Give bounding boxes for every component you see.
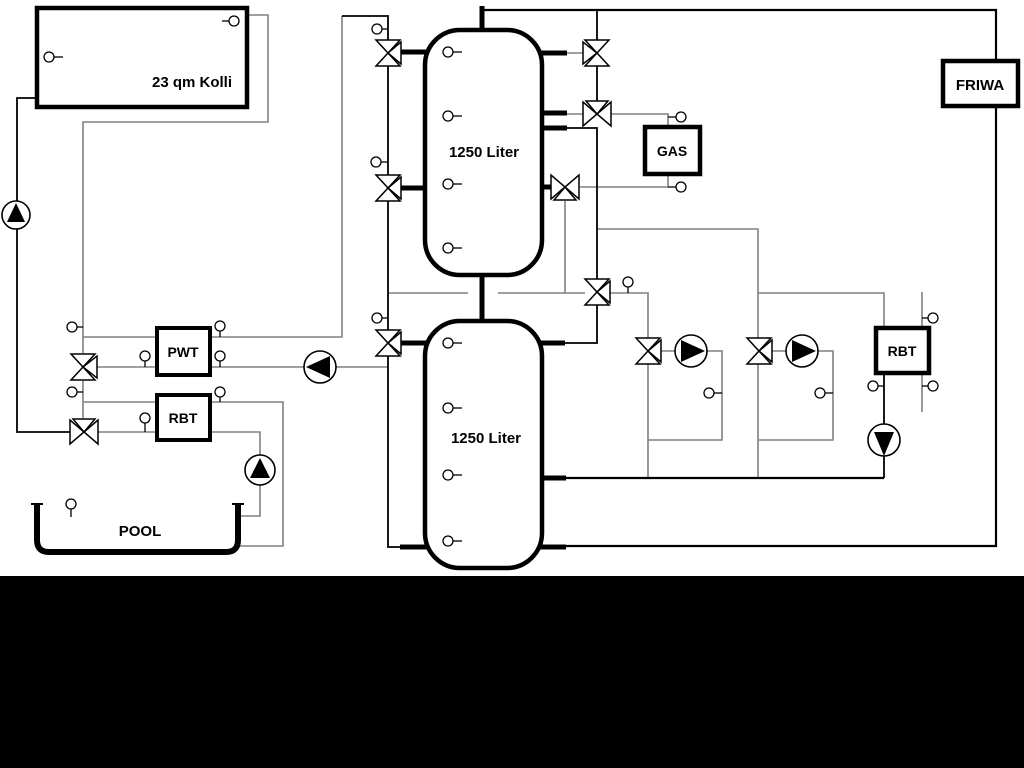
sensor-gas-flow-icon (668, 112, 686, 122)
sensor-solar-1-icon (67, 322, 83, 332)
rbt-pool-unit: RBT (157, 395, 210, 440)
solar-pump-icon (2, 201, 30, 229)
buffer-tank-top-label: 1250 Liter (449, 144, 519, 161)
schematic-canvas: 23 qm Kolli 1250 Liter 1250 Liter PWT RB… (0, 0, 1024, 768)
gas-return-drop-pipe (565, 201, 585, 293)
tank-left-header-pipe (342, 16, 404, 547)
buffer-tank-top: 1250 Liter (425, 30, 542, 275)
gas-boiler-label: GAS (657, 143, 687, 159)
three-way-valve-gas-return-icon (551, 175, 579, 200)
sensor-rbt-pool-out-icon (215, 387, 225, 402)
tank-valve-link-pipe (565, 53, 583, 114)
rbt-right-pump-icon (868, 424, 900, 456)
tank-right-mid-pipe (565, 128, 597, 343)
circuit2-pump-icon (786, 335, 818, 367)
rbt-pool-label: RBT (169, 410, 198, 426)
rbt-right-unit: RBT (876, 328, 929, 373)
sensor-header-low-icon (372, 313, 388, 323)
solar-flow-pipe (17, 98, 70, 432)
pool: POOL (31, 504, 244, 552)
circuit1-pump-icon (675, 335, 707, 367)
pool-label: POOL (119, 523, 162, 540)
three-way-valve-gas-flow-icon (583, 101, 611, 126)
solar-collector-label: 23 qm Kolli (152, 74, 232, 91)
sensor-header-top-icon (372, 24, 388, 34)
pool-pump-icon (245, 455, 275, 485)
footer-band (0, 576, 1024, 768)
friwa-unit: FRIWA (943, 61, 1018, 106)
sensor-header-mid-icon (371, 157, 388, 167)
sensor-solar-2-icon (67, 387, 83, 397)
hydraulic-schematic: 23 qm Kolli 1250 Liter 1250 Liter PWT RB… (0, 0, 1024, 768)
rbt-right-label: RBT (888, 343, 917, 359)
sensor-circuit2-icon (815, 388, 833, 398)
pwt-unit: PWT (157, 328, 210, 375)
three-way-valve-circuit2-icon (747, 338, 772, 364)
sensor-pwt-out-bottom-icon (215, 351, 225, 367)
sensor-gas-return-icon (668, 182, 686, 192)
gas-boiler: GAS (645, 127, 700, 174)
rbt-right-feed-pipe (758, 293, 884, 328)
three-way-valve-tank2-left-icon (376, 330, 401, 356)
sensor-circuit1-icon (704, 388, 722, 398)
solar-collector: 23 qm Kolli (37, 8, 247, 107)
sensor-pwt-out-top-icon (215, 321, 225, 337)
pwt-label: PWT (167, 344, 199, 360)
sensor-bypass-top-icon (922, 313, 938, 323)
three-way-valve-distributor-icon (585, 279, 610, 305)
sensor-distributor-icon (623, 277, 633, 293)
three-way-valve-tank1-top-left-icon (376, 40, 401, 66)
three-way-valve-solar-pwt-icon (71, 354, 97, 380)
three-way-valve-tank1-mid-left-icon (376, 175, 401, 201)
sensor-pwt-in-icon (140, 351, 150, 367)
buffer-tank-bottom: 1250 Liter (425, 321, 542, 568)
three-way-valve-circuit1-icon (636, 338, 661, 364)
three-way-valve-tank1-top-right-icon (583, 40, 609, 66)
sensor-pool-icon (66, 499, 76, 517)
solar-collector-box (37, 8, 247, 107)
circuit1-riser-pipe (610, 293, 648, 478)
friwa-label: FRIWA (956, 77, 1004, 94)
friwa-loop-pipe (482, 10, 996, 546)
sensor-bypass-bottom-icon (922, 381, 938, 391)
buffer-tank-bottom-label: 1250 Liter (451, 430, 521, 447)
three-way-valve-solar-pool-icon (70, 419, 98, 444)
sensor-rbt-right-icon (868, 381, 884, 391)
pwt-pump-icon (304, 351, 336, 383)
sensor-rbt-pool-in-icon (140, 413, 150, 432)
